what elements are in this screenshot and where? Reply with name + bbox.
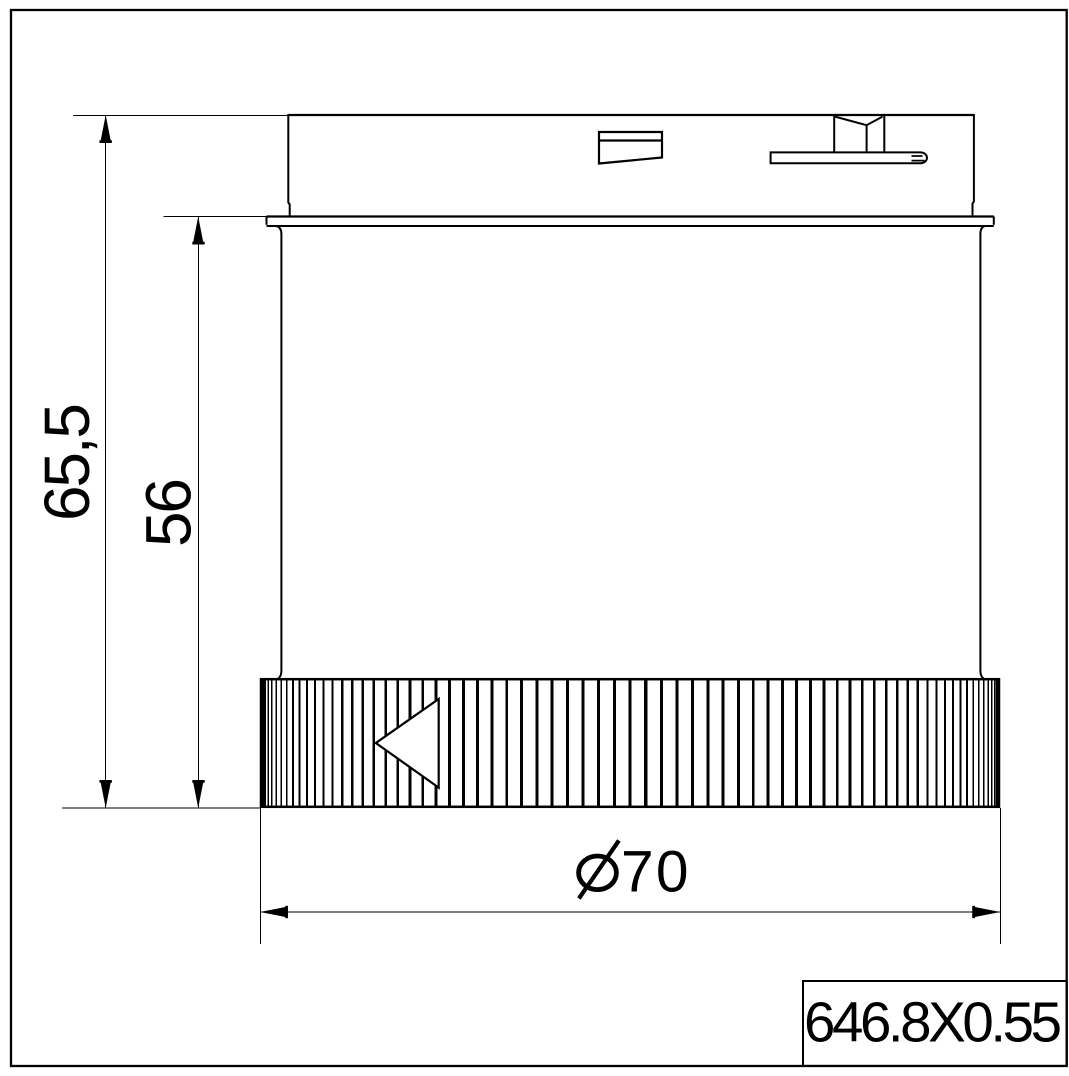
- svg-text:646.8X0.55: 646.8X0.55: [804, 991, 1062, 1054]
- svg-text:65,5: 65,5: [31, 403, 103, 521]
- svg-text:56: 56: [132, 478, 204, 547]
